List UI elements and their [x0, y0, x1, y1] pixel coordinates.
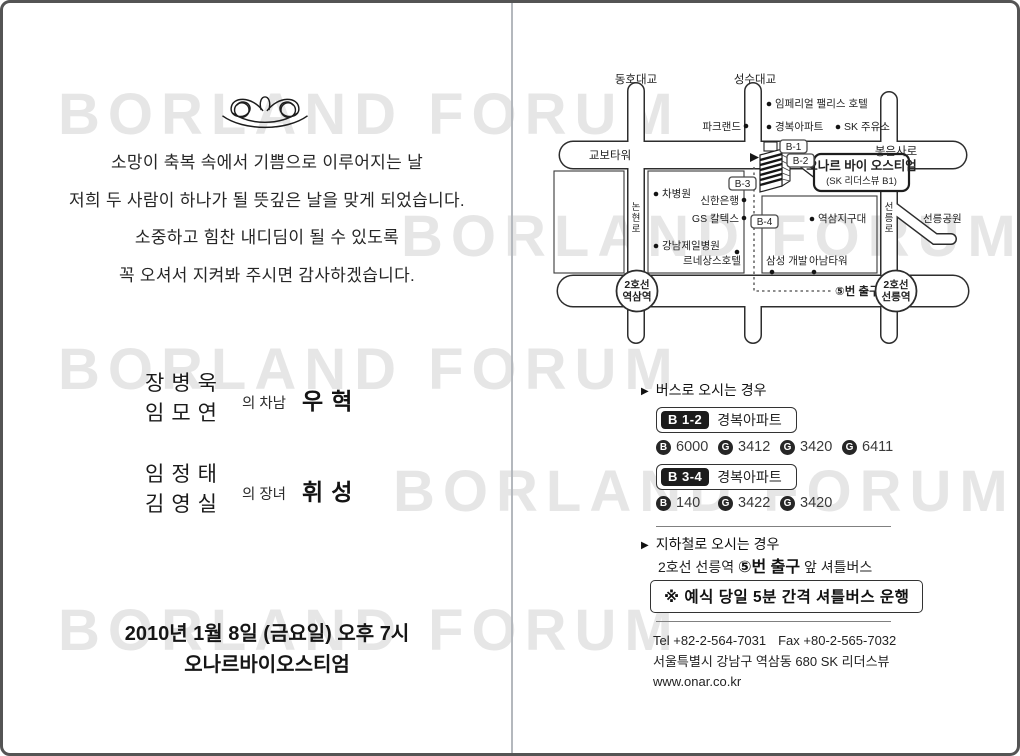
venue-callout-title: 오나르 바이 오스티엄 [806, 158, 916, 173]
label-dongho-bridge: 동호대교 [615, 73, 657, 86]
bus-type-icon: G [718, 440, 733, 455]
panel-divider [511, 3, 513, 756]
bus-type-icon: B [656, 496, 671, 511]
bus-line: G3420 [780, 495, 834, 511]
station-seolleung: 2호선 선릉역 [876, 271, 917, 312]
contact-website: www.onar.co.kr [653, 672, 896, 693]
section-divider [656, 621, 891, 622]
bus-directions-header-label: 버스로 오시는 경우 [656, 382, 767, 398]
bride-family: 임정태 김영실 의 장녀 휘성 [145, 460, 360, 520]
bus-number: 6411 [862, 439, 893, 455]
station-yeoksam: 2호선 역삼역 [617, 271, 658, 312]
flourish-ornament-icon [206, 81, 324, 139]
groom-name: 우혁 [302, 382, 360, 416]
marker-b2: B-2 [793, 156, 809, 167]
wedding-datetime: 2010년 1월 8일 (금요일) 오후 7시 [23, 619, 511, 650]
bus-type-icon: G [780, 440, 795, 455]
marker-b1: B-1 [786, 142, 802, 153]
bus-number: 3412 [738, 439, 770, 455]
bus-line: G6411 [842, 439, 896, 455]
bus-stop-name: 경복아파트 [717, 410, 781, 430]
bride-mother-name: 김영실 [145, 490, 224, 520]
landmark-labels: 파크랜드 임페리얼 팰리스 호텔 경복아파트 SK 주유소 차병원 신한은행 G… [662, 97, 962, 267]
bus-stop-badge-1: B 1-2 경복아파트 [656, 407, 797, 433]
label-sk-gas: SK 주유소 [844, 121, 890, 133]
bus-type-icon: G [780, 496, 795, 511]
groom-family: 장병욱 임모연 의 차남 우혁 [145, 369, 360, 429]
label-imperial-palace-hotel: 임페리얼 팰리스 호텔 [775, 97, 868, 110]
contact-block: Tel +82-2-564-7031Fax +80-2-565-7032 서울특… [653, 631, 896, 693]
label-shinhan-bank: 신한은행 [700, 195, 739, 207]
bus-line: G3412 [718, 439, 772, 455]
bride-name: 휘성 [302, 473, 360, 507]
label-exit-5: ⑤번 출구 [835, 284, 880, 298]
label-renaissance-hotel: 르네상스호텔 [683, 255, 741, 267]
label-anam-tower: 아남타워 [809, 254, 848, 267]
invite-line: 소중하고 힘찬 내디딤이 될 수 있도록 [23, 219, 511, 257]
bus-number: 3420 [800, 439, 832, 455]
triangle-bullet-icon: ▶ [641, 386, 649, 397]
label-nonhyeon-ro: 논현로 [632, 202, 641, 235]
wedding-venue: 오나르바이오스티엄 [23, 650, 511, 681]
bride-father-name: 임정태 [145, 460, 224, 490]
bus-stop-pill: B 1-2 [661, 411, 709, 429]
contact-tel: Tel +82-2-564-7031 [653, 633, 766, 648]
bus-number: 3422 [738, 495, 770, 511]
station-seolleung-line: 2호선 [883, 278, 908, 291]
bus-lines-row-1: B6000 G3412 G3420 G6411 [656, 439, 896, 455]
bus-lines-row-2: B140 G3422 G3420 [656, 495, 834, 511]
label-cha-hospital: 차병원 [662, 188, 691, 200]
invite-line: 꼭 오셔서 지켜봐 주시면 감사하겠습니다. [23, 257, 511, 295]
bride-parents: 임정태 김영실 [145, 460, 224, 520]
station-seolleung-name: 선릉역 [882, 290, 911, 303]
marker-b4: B-4 [757, 217, 773, 228]
station-yeoksam-name: 역삼역 [623, 290, 652, 303]
invite-line: 저희 두 사람이 하나가 될 뜻깊은 날을 맞게 되었습니다. [23, 182, 511, 220]
bus-line: B6000 [656, 439, 710, 455]
location-map: 오나르 바이 오스티엄 (SK 리더스뷰 B1) B-1 B-2 B-3 B-4… [538, 51, 1008, 361]
contact-tel-fax: Tel +82-2-564-7031Fax +80-2-565-7032 [653, 631, 896, 652]
bus-stop-pill: B 3-4 [661, 468, 709, 486]
shuttle-notice-box: ※ 예식 당일 5분 간격 셔틀버스 운행 [650, 580, 923, 613]
subway-line-text: 2호선 선릉역 [658, 559, 738, 575]
subway-directions-header-label: 지하철로 오시는 경우 [656, 536, 780, 552]
label-seolleung-ro: 선릉로 [885, 202, 894, 235]
label-kangnam-jeil-hospital: 강남제일병원 [662, 239, 720, 252]
section-divider [656, 526, 891, 527]
triangle-bullet-icon: ▶ [641, 540, 649, 551]
label-gyeongbok-apt: 경복아파트 [775, 120, 824, 133]
label-kyobo-tower: 교보타워 [589, 149, 631, 162]
bus-stop-name: 경복아파트 [717, 467, 781, 487]
bus-number: 6000 [676, 439, 708, 455]
invite-line: 소망이 축복 속에서 기쁨으로 이루어지는 날 [23, 144, 511, 182]
invitation-card: BORLAND FORUM BORLAND FORUM BORLAND FORU… [0, 0, 1020, 756]
bus-line: G3420 [780, 439, 834, 455]
bus-type-icon: B [656, 440, 671, 455]
bus-number: 140 [676, 495, 700, 511]
bus-type-icon: G [842, 440, 857, 455]
bride-relation: 의 장녀 [242, 483, 286, 504]
bus-type-icon: G [718, 496, 733, 511]
bus-stop-badge-2: B 3-4 경복아파트 [656, 464, 797, 490]
station-yeoksam-line: 2호선 [624, 278, 649, 291]
subway-exit-bold: ⑤번 출구 [738, 559, 800, 576]
contact-fax: Fax +80-2-565-7032 [778, 633, 896, 648]
groom-parents: 장병욱 임모연 [145, 369, 224, 429]
bus-number: 3420 [800, 495, 832, 511]
subway-directions-header: ▶지하철로 오시는 경우 [641, 534, 779, 554]
label-samsung-dev: 삼성 개발 [766, 255, 808, 267]
label-gs-caltex: GS 칼텍스 [692, 212, 739, 225]
subway-directions-line: 2호선 선릉역 ⑤번 출구 앞 셔틀버스 [658, 553, 872, 577]
venue-callout-sub: (SK 리더스뷰 B1) [826, 176, 897, 187]
contact-address: 서울특별시 강남구 역삼동 680 SK 리더스뷰 [653, 652, 896, 673]
groom-relation: 의 차남 [242, 392, 286, 413]
invitation-message: 소망이 축복 속에서 기쁨으로 이루어지는 날 저희 두 사람이 하나가 될 뜻… [23, 144, 511, 294]
wedding-datetime-block: 2010년 1월 8일 (금요일) 오후 7시 오나르바이오스티엄 [23, 619, 511, 681]
label-bongeunsa-ro: 봉은사로 [875, 145, 917, 158]
groom-father-name: 장병욱 [145, 369, 224, 399]
groom-mother-name: 임모연 [145, 399, 224, 429]
bus-directions-header: ▶버스로 오시는 경우 [641, 380, 767, 400]
bus-line: G3422 [718, 495, 772, 511]
label-yeoksam-police: 역삼지구대 [818, 213, 866, 225]
label-parkland: 파크랜드 [702, 121, 741, 133]
label-seolleung-park: 선릉공원 [923, 213, 962, 225]
subway-line-text: 앞 셔틀버스 [800, 559, 872, 575]
marker-b3: B-3 [735, 179, 751, 190]
bus-line: B140 [656, 495, 710, 511]
label-seongsu-bridge: 성수대교 [734, 73, 776, 86]
